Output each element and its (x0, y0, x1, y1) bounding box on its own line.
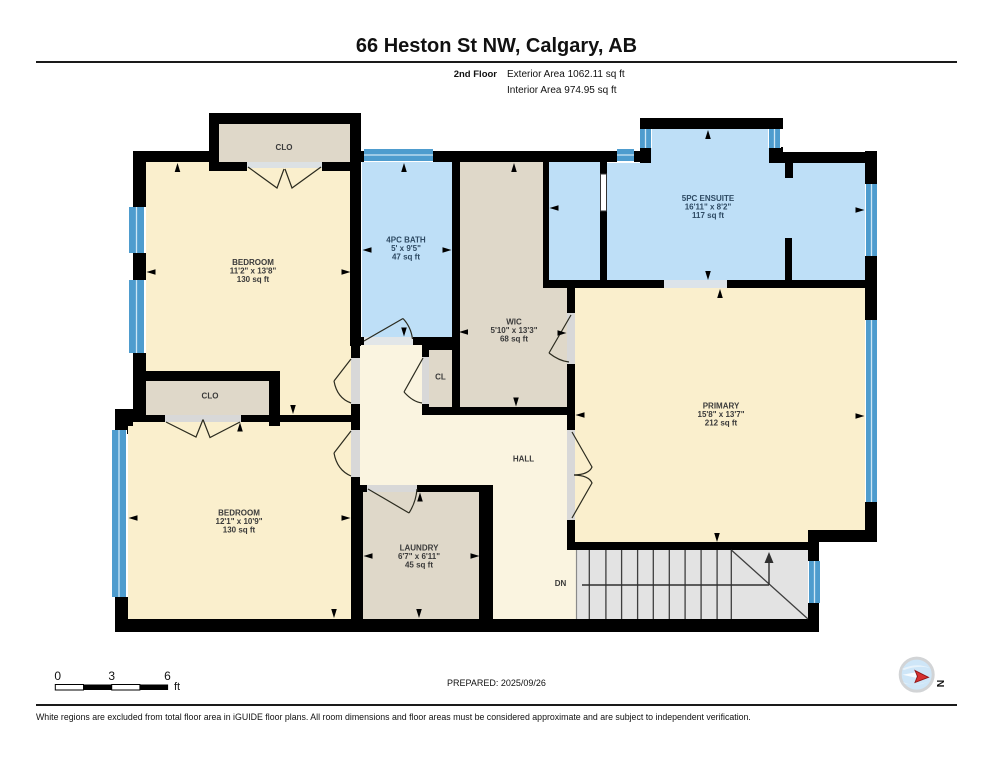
svg-text:CLO: CLO (276, 143, 293, 152)
svg-text:130 sq ft: 130 sq ft (223, 525, 256, 534)
svg-text:212 sq ft: 212 sq ft (705, 418, 738, 427)
svg-text:DN: DN (555, 579, 567, 588)
svg-text:CLO: CLO (202, 392, 219, 401)
svg-text:45 sq ft: 45 sq ft (405, 560, 433, 569)
svg-text:47 sq ft: 47 sq ft (392, 252, 420, 261)
svg-text:CL: CL (435, 373, 446, 382)
svg-text:117 sq ft: 117 sq ft (692, 211, 724, 220)
svg-text:HALL: HALL (513, 455, 534, 464)
svg-text:130 sq ft: 130 sq ft (237, 275, 270, 284)
svg-text:68 sq ft: 68 sq ft (500, 334, 528, 343)
